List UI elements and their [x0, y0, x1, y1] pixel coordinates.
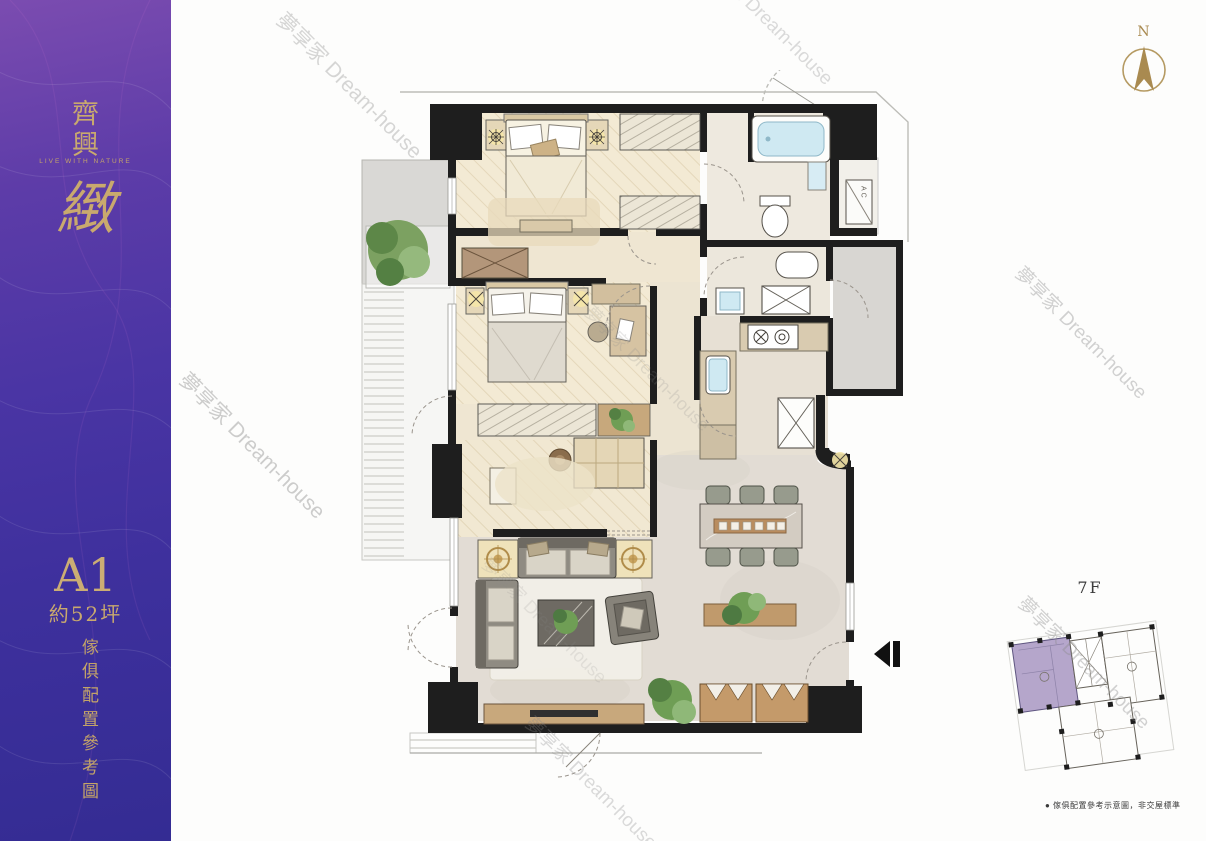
study-rug — [495, 457, 595, 511]
compass-icon — [1114, 41, 1174, 99]
keyplan-floor-label: 7F — [995, 578, 1185, 597]
shoe-cabinet-1 — [700, 684, 752, 722]
bed-2 — [486, 282, 568, 382]
tv-console — [484, 704, 644, 724]
dining-area — [700, 486, 802, 626]
unit-label: A1 — [0, 548, 171, 602]
washer — [762, 286, 810, 314]
dresser — [462, 248, 528, 278]
watermark-text: 夢享家 Dream-house — [1010, 260, 1155, 405]
door-leaf — [566, 733, 600, 767]
entry-arrow-icon — [874, 641, 900, 667]
watermark: 夢享家 Dream-house — [173, 365, 333, 525]
bathtub — [752, 116, 830, 162]
shoe-cabinet-2 — [756, 684, 808, 722]
floorplan: AC — [350, 70, 915, 785]
kitchen-cabinet — [700, 425, 736, 459]
bottom-terrace — [410, 733, 762, 753]
armchair — [605, 591, 659, 645]
north-label: N — [1114, 24, 1174, 40]
bed-bench — [520, 220, 572, 232]
kitchen-sink — [706, 356, 730, 394]
keyplan-caption: ● 傢俱配置參考示意圖，非交屋標準 — [1045, 800, 1205, 811]
brand-script-character: 緻 — [0, 162, 171, 246]
watermark-text: 夢享家 Dream-house — [173, 365, 333, 525]
wash-basin — [716, 288, 744, 314]
ac-niche: AC — [846, 180, 872, 224]
dining-chairs-bottom — [706, 548, 798, 566]
dining-chairs-top — [706, 486, 798, 504]
unit-area: 約52坪 — [0, 598, 171, 627]
ac-label: AC — [860, 186, 867, 200]
toilet-2 — [776, 252, 818, 278]
bath-window — [808, 162, 826, 190]
furniture-note-vertical: 傢俱配置參考圖 — [76, 638, 101, 808]
coffee-table — [538, 600, 594, 646]
bedroom2-console — [592, 284, 640, 304]
side-table-left — [478, 540, 518, 578]
keyplan-unit-a1 — [1012, 637, 1079, 712]
sofa-left — [476, 580, 518, 668]
north-compass: N — [1114, 24, 1174, 100]
sofa-main — [518, 538, 616, 578]
toilet-1 — [760, 196, 790, 237]
keyplan: 7F — [995, 578, 1205, 828]
stove — [748, 325, 798, 349]
brochure-page: 齊興 LIVE WITH NATURE 緻 A1 約52坪 傢俱配置參考圖 N — [0, 0, 1206, 841]
refrigerator — [778, 398, 814, 448]
dining-table — [700, 504, 802, 548]
keyplan-drawing — [1000, 604, 1190, 794]
brand-sidebar: 齊興 LIVE WITH NATURE 緻 A1 約52坪 傢俱配置參考圖 — [0, 0, 171, 841]
watermark: 夢享家 Dream-house — [1010, 260, 1155, 405]
desk-chair — [588, 322, 608, 342]
side-table-right — [614, 540, 652, 578]
